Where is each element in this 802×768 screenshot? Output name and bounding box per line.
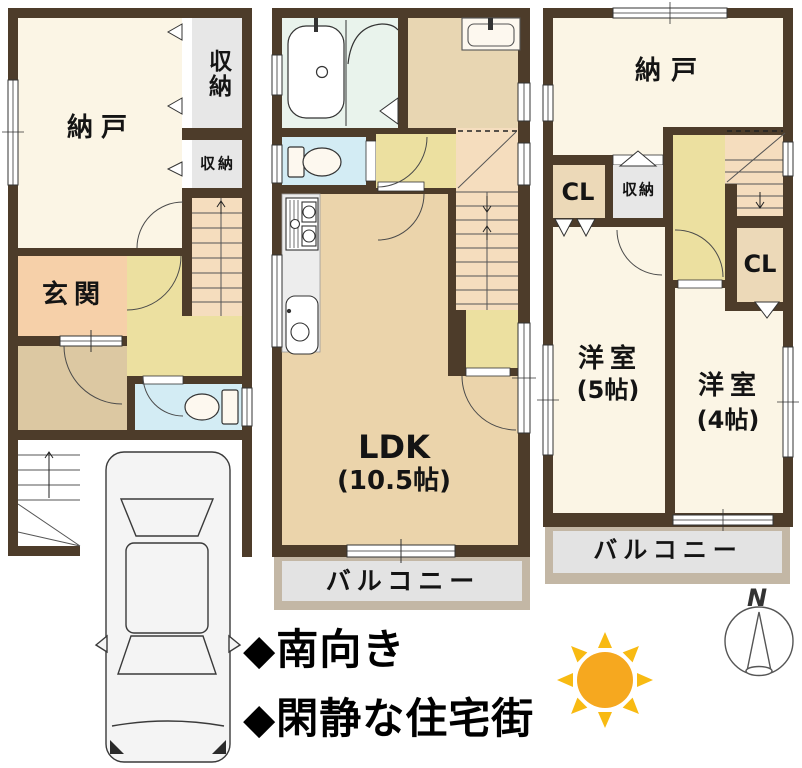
floor3-cl-left-label: CL bbox=[562, 180, 595, 204]
floor-plan-canvas: 納戸 収納 収納 玄関 LDK (10.5帖) バルコニー 納戸 CL 収納 C… bbox=[0, 0, 802, 768]
floor3-room4-label: 洋室 bbox=[698, 373, 762, 399]
floor1-closet-small-label: 収納 bbox=[200, 157, 236, 172]
floor3-plan bbox=[537, 2, 799, 584]
floor1-nando-label: 納戸 bbox=[67, 115, 135, 141]
floor3-room5-label: 洋室 bbox=[578, 346, 642, 372]
floor3-nando-label: 納戸 bbox=[635, 58, 707, 84]
compass-icon bbox=[725, 607, 793, 676]
compass-north-label: N bbox=[747, 584, 767, 612]
floor3-balcony-label: バルコニー bbox=[593, 538, 743, 562]
floor1-closet-top-label: 収納 bbox=[206, 49, 229, 99]
note-quiet-area: ◆閑静な住宅街 bbox=[243, 698, 534, 740]
car-top-view-icon bbox=[96, 452, 240, 762]
floor2-plan bbox=[272, 8, 536, 610]
toilet-icon bbox=[288, 147, 341, 177]
floor2-balcony-label: バルコニー bbox=[326, 569, 481, 594]
washbasin-icon bbox=[462, 18, 520, 50]
note-south-facing: ◆南向き bbox=[243, 629, 405, 671]
floor3-room5-size-label: (5帖) bbox=[577, 378, 640, 402]
floor3-cl-right-label: CL bbox=[744, 252, 777, 276]
floor2-ldk-label: LDK bbox=[358, 431, 430, 463]
stove-icon bbox=[286, 198, 318, 250]
floor1-genkan-label: 玄関 bbox=[42, 282, 106, 308]
kitchen-sink-icon bbox=[286, 296, 318, 354]
floor2-ldk-size-label: (10.5帖) bbox=[337, 468, 451, 494]
sun-icon bbox=[557, 632, 653, 728]
floor3-room4-size-label: (4帖) bbox=[697, 408, 760, 432]
floor3-closet-label: 収納 bbox=[622, 183, 656, 198]
